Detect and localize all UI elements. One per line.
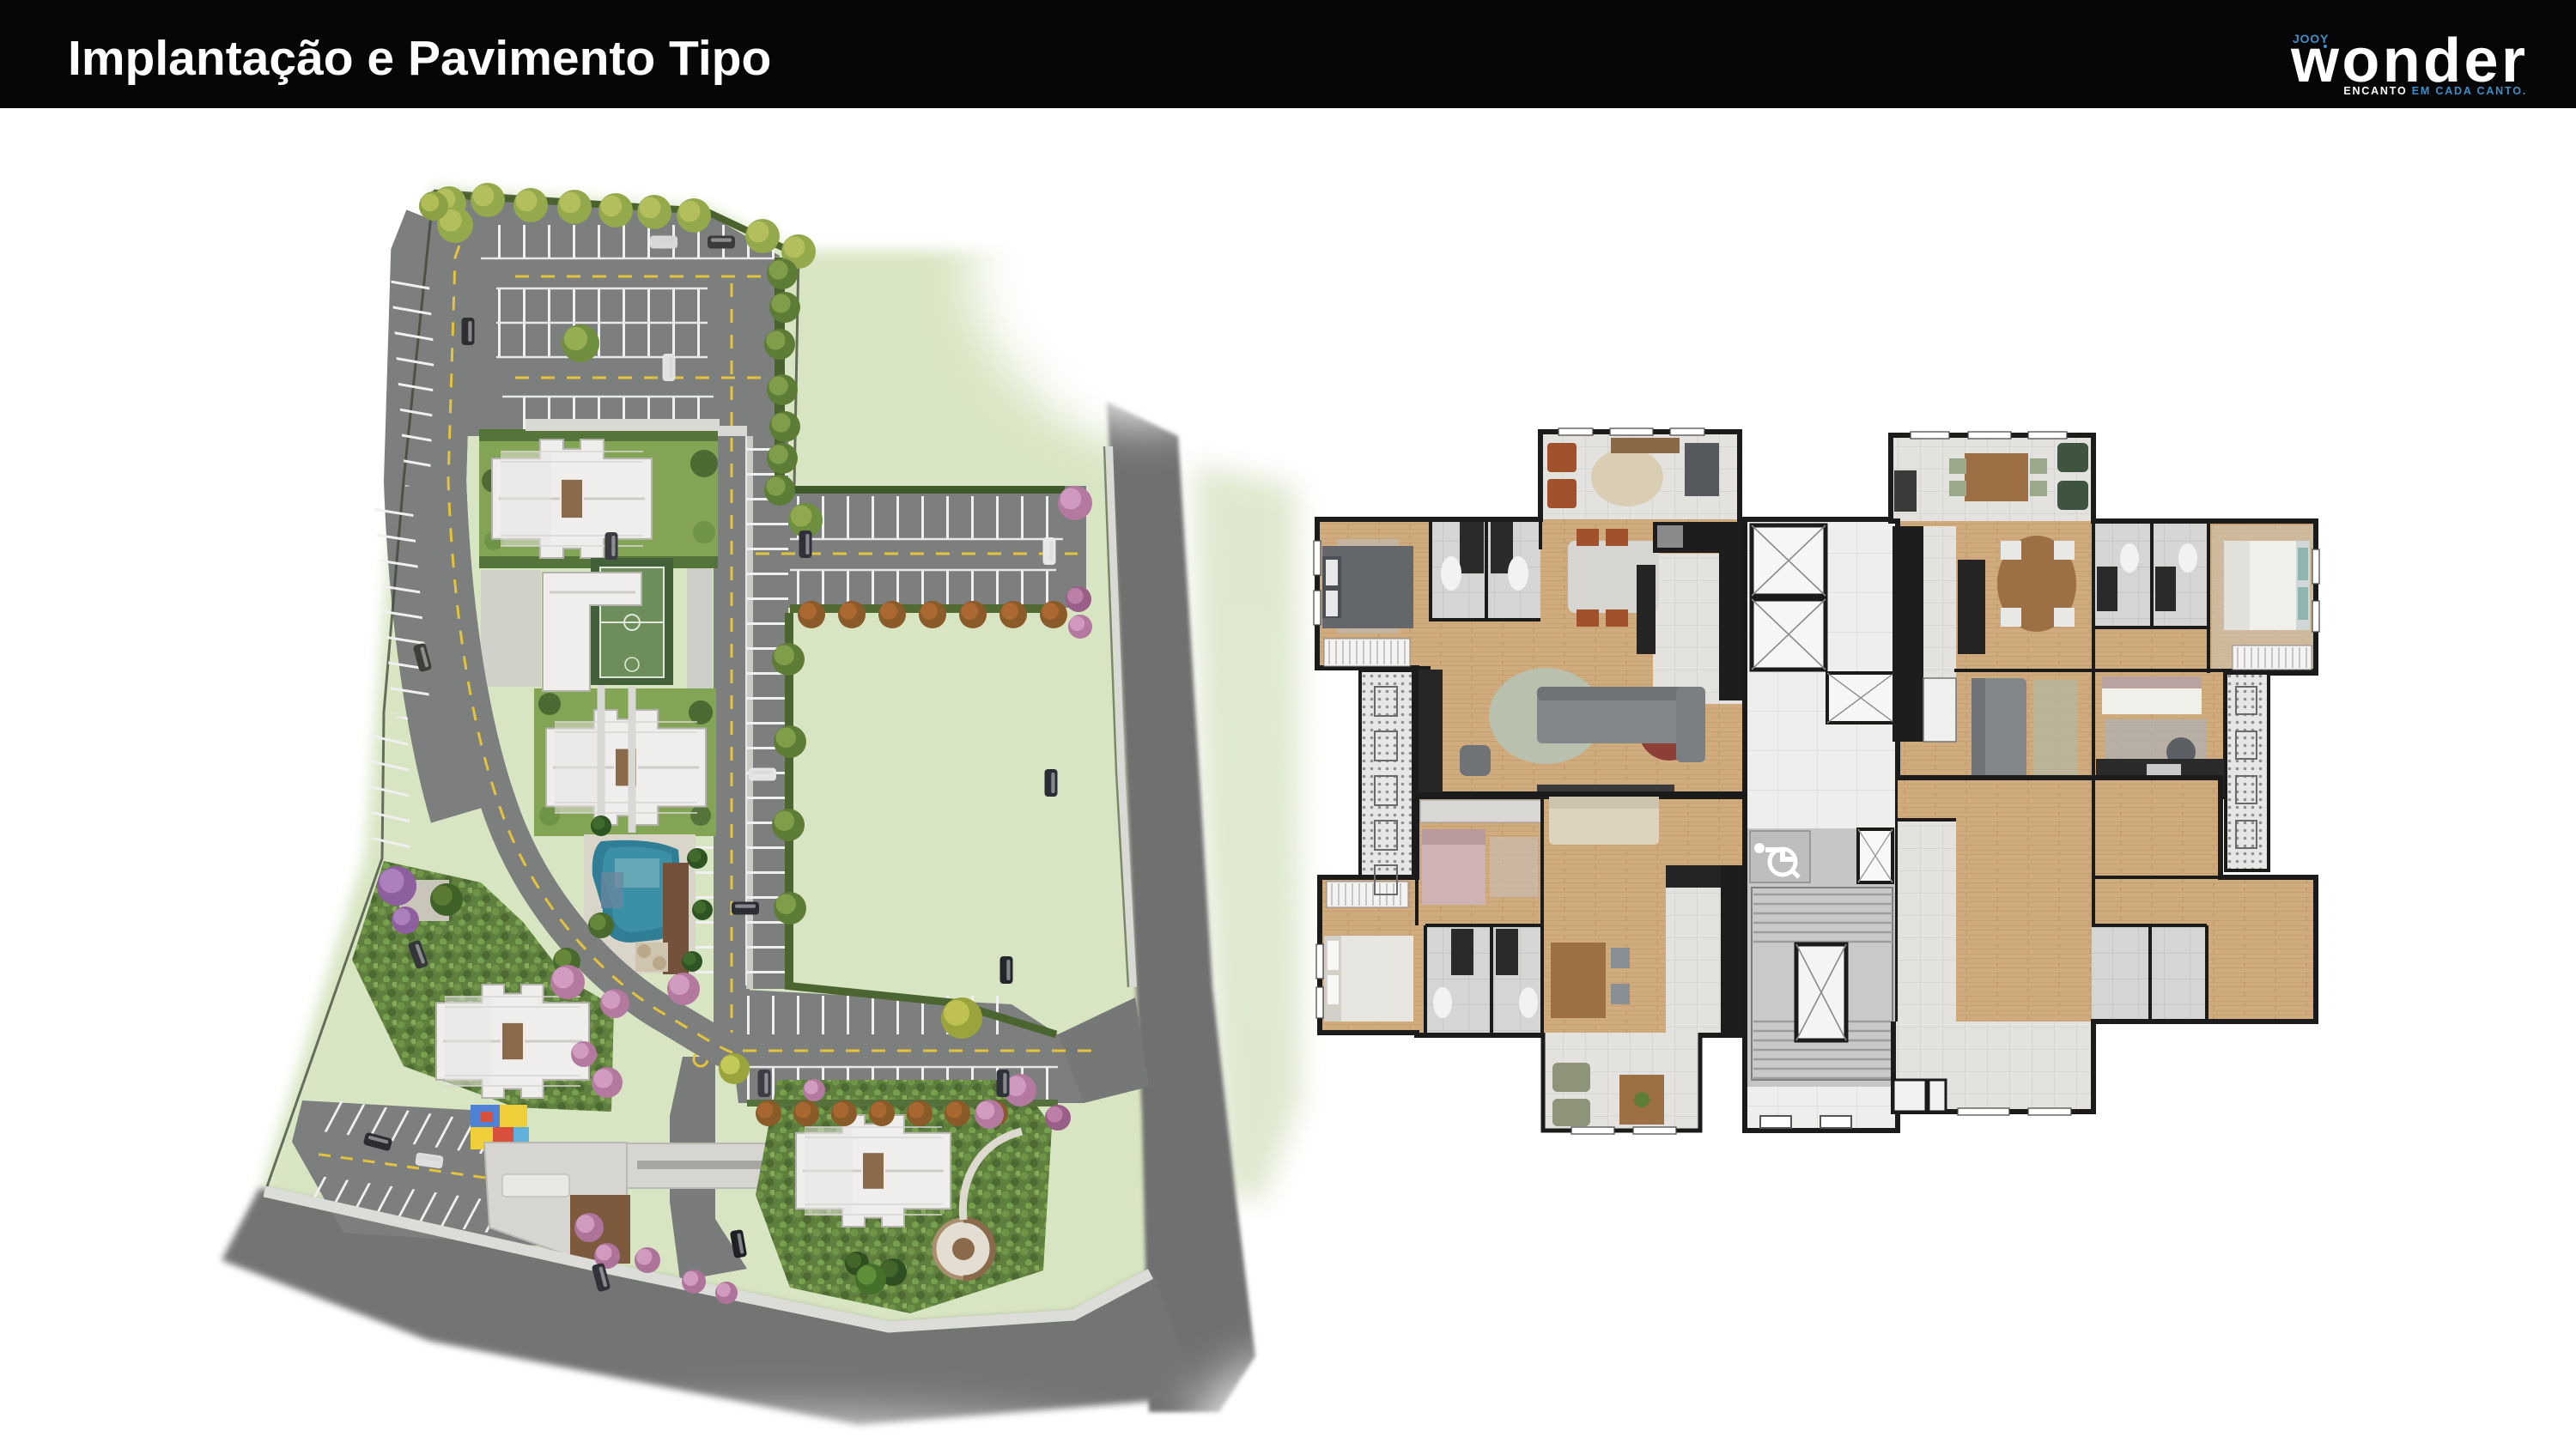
svg-text:Implantação e Pavimento Tipo: Implantação e Pavimento Tipo bbox=[68, 31, 771, 86]
svg-text:ENCANTO EM CADA CANTO.: ENCANTO EM CADA CANTO. bbox=[2343, 85, 2527, 97]
